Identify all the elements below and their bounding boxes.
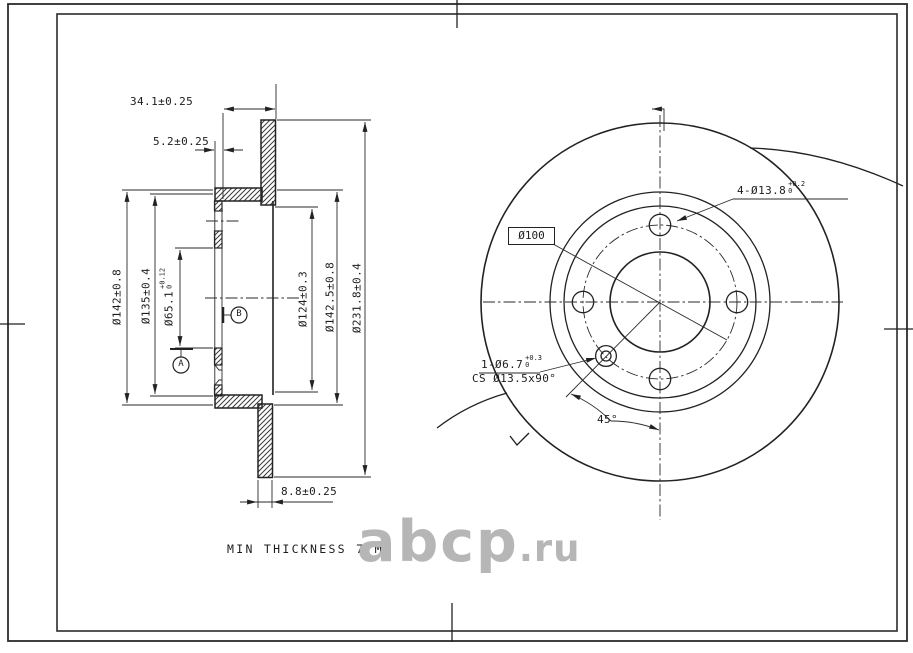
plan-view bbox=[437, 109, 903, 520]
dia-142-label: Ø142±0.8 bbox=[111, 269, 124, 325]
angle-label: 45° bbox=[597, 413, 618, 426]
flange-section-3 bbox=[215, 348, 223, 365]
surface-finish-mark bbox=[510, 433, 529, 445]
rotation-direction-mark bbox=[652, 109, 664, 131]
break-arc-top-right bbox=[750, 148, 903, 186]
watermark: abcp .ru bbox=[357, 514, 581, 571]
bolt-holes-label: 4-Ø13.8+0.20 bbox=[737, 184, 805, 199]
datum-b-letter: B bbox=[233, 309, 245, 319]
datum-a-letter: A bbox=[175, 359, 187, 369]
dim-disc-thickness-label: 8.8±0.25 bbox=[281, 485, 337, 498]
hat-wall-bottom-section bbox=[215, 395, 262, 408]
bolt-circle-dia-box: Ø100 bbox=[508, 227, 555, 245]
break-arc-bottom-left bbox=[437, 393, 507, 428]
watermark-name: abcp bbox=[357, 514, 519, 571]
friction-ring-bottom-section bbox=[258, 404, 273, 478]
dia-65-label: Ø65.1+0.120 bbox=[163, 268, 178, 326]
cs-hole-label-line1: 1-Ø6.7+0.30 bbox=[481, 358, 542, 373]
dia-142-5-label: Ø142.5±0.8 bbox=[324, 262, 337, 332]
dia-135-label: Ø135±0.4 bbox=[140, 268, 153, 324]
flange-section-1 bbox=[215, 201, 223, 211]
dim-overall-width-label: 34.1±0.25 bbox=[130, 95, 193, 108]
cs-hole-label-line2: CS Ø13.5x90° bbox=[472, 372, 556, 385]
angle-dim-arc-right bbox=[611, 421, 659, 430]
flange-section-2 bbox=[215, 231, 223, 248]
drawing-sheet: 34.1±0.25 5.2±0.25 8.8±0.25 Ø142±0.8 Ø13… bbox=[0, 0, 913, 653]
dia-231-8-label: Ø231.8±0.4 bbox=[351, 263, 364, 333]
hat-wall-top-section bbox=[215, 188, 262, 201]
dia-124-label: Ø124±0.3 bbox=[297, 271, 310, 327]
dim-flange-thickness-label: 5.2±0.25 bbox=[153, 135, 209, 148]
watermark-tld: .ru bbox=[519, 530, 581, 567]
section-view bbox=[205, 120, 302, 478]
friction-ring-top-section bbox=[261, 120, 276, 205]
